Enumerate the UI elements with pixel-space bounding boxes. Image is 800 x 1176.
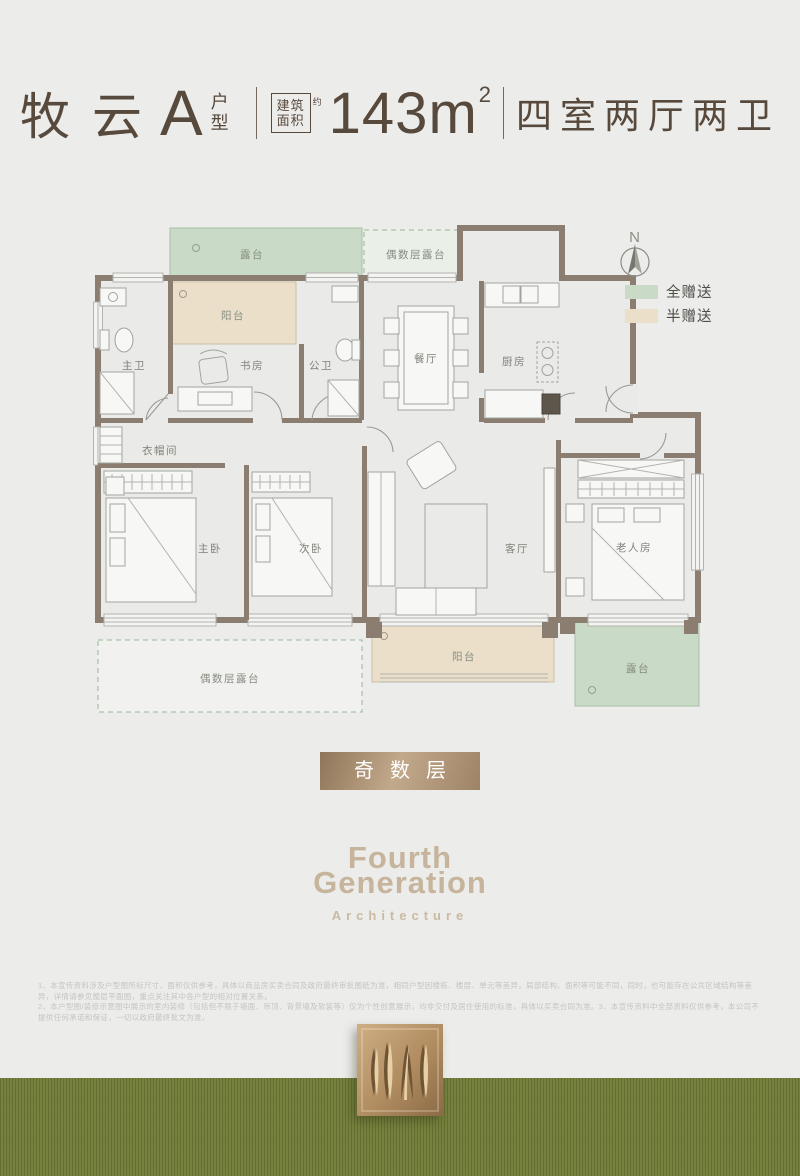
room-label-living: 客厅 (505, 542, 529, 555)
area-approx: 约 (313, 95, 322, 108)
disclaimer-line1: 1、本宣传资料涉及户型图所标尺寸、面积仅供参考，具体以商品房买卖合同及政府最终审… (38, 981, 764, 1002)
legend-label-half-gift: 半赠送 (666, 308, 713, 325)
floor-badge: 奇数层 (320, 752, 480, 790)
unit-letter: A (160, 76, 203, 150)
room-label-guest-bath: 公卫 (309, 360, 333, 372)
room-label-second-bedroom: 次卧 (299, 542, 323, 555)
room-label-balcony-top: 阳台 (221, 309, 245, 322)
brand-line2: Generation (0, 870, 800, 895)
room-label-master-bath: 主卫 (122, 360, 146, 372)
layout-summary: 四室两厅两卫 (516, 87, 780, 139)
floorplan: 露台 偶数层露台 阳台 主卫 书房 公卫 餐厅 厨房 衣帽间 主卧 次卧 客厅 … (0, 222, 800, 722)
room-label-terrace-top: 露台 (240, 248, 264, 261)
disclaimer: 1、本宣传资料涉及户型图所标尺寸、面积仅供参考，具体以商品房买卖合同及政府最终审… (38, 981, 764, 1023)
header-title: 牧云 A 户 型 建筑 面积 约 143m2 四室两厅两卫 (0, 78, 800, 148)
svg-text:N: N (629, 229, 641, 246)
room-label-even-terrace-bottom: 偶数层露台 (200, 672, 260, 685)
room-label-dining: 餐厅 (414, 352, 438, 365)
area-value: 143m (329, 80, 478, 147)
brand-block: Fourth Generation Architecture (0, 845, 800, 923)
room-label-elder-room: 老人房 (616, 541, 652, 554)
room-label-study: 书房 (240, 359, 264, 372)
brand-line3: Architecture (0, 908, 800, 923)
legend: 全赠送 半赠送 (625, 283, 713, 325)
title-divider (256, 87, 257, 139)
floorplan-drawing: 露台 偶数层露台 阳台 主卫 书房 公卫 餐厅 厨房 衣帽间 主卧 次卧 客厅 … (0, 222, 800, 722)
legend-label-full-gift: 全赠送 (666, 283, 713, 301)
room-label-balcony-bottom: 阳台 (452, 650, 476, 663)
room-label-kitchen: 厨房 (502, 355, 526, 368)
unit-suffix: 户 型 (211, 92, 230, 134)
legend-swatch-half-gift (625, 309, 658, 323)
disclaimer-line2: 2、本户型图/装修示意图中展示的室内装修（包括但不限于墙面、吊顶、背景墙及软装等… (38, 1002, 764, 1023)
plan-name: 牧云 (20, 77, 164, 149)
room-label-master-bedroom: 主卧 (198, 542, 222, 555)
developer-logo (357, 1024, 443, 1116)
legend-swatch-full-gift (625, 285, 658, 299)
room-label-cloakroom: 衣帽间 (142, 444, 178, 457)
area-exponent: 2 (479, 82, 491, 108)
north-compass-icon: N (621, 229, 649, 276)
room-label-even-terrace-top: 偶数层露台 (386, 248, 446, 261)
title-divider (503, 87, 504, 139)
terrace-top-zone (170, 228, 362, 278)
floorplan-poster: 牧云 A 户 型 建筑 面积 约 143m2 四室两厅两卫 (0, 0, 800, 1176)
area-box: 建筑 面积 约 (271, 93, 311, 133)
room-label-terrace-bottom: 露台 (626, 662, 650, 675)
